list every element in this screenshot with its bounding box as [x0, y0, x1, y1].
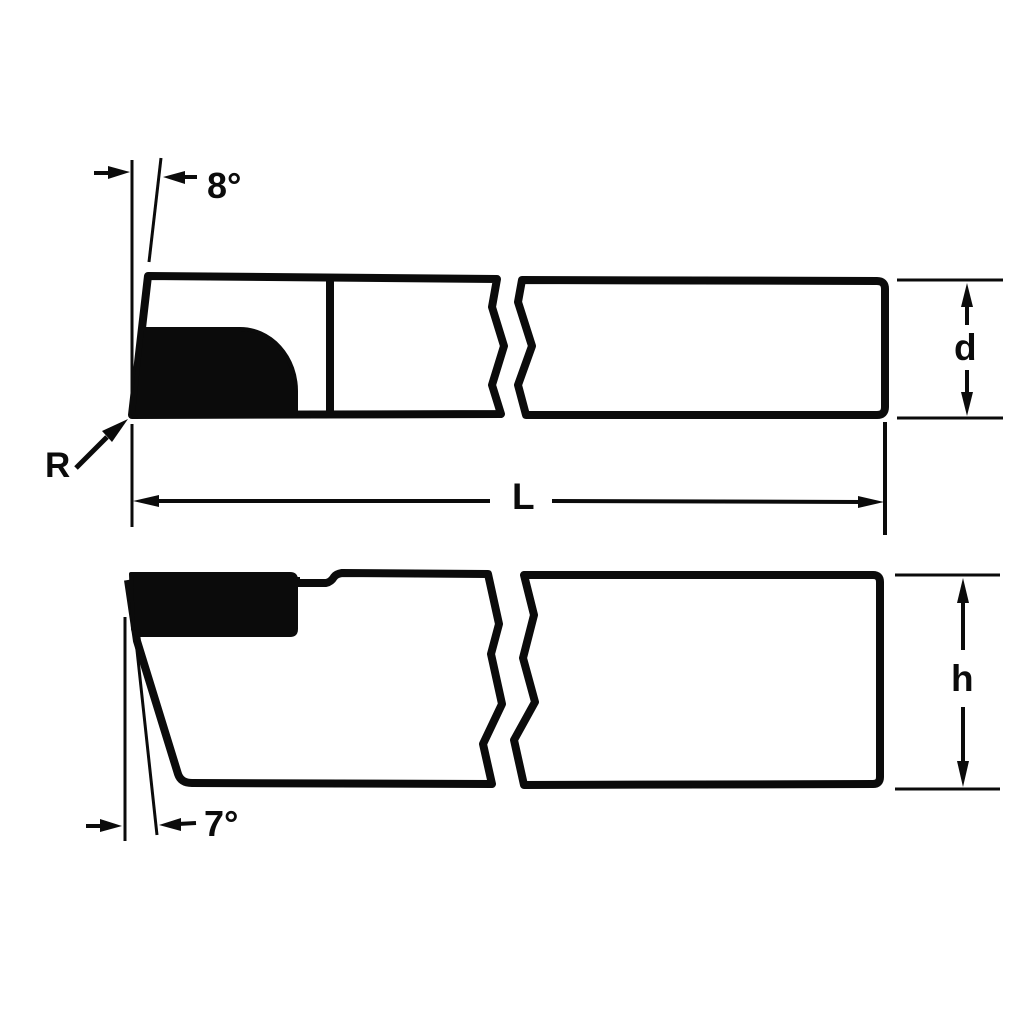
- svg-text:d: d: [954, 327, 977, 368]
- svg-text:8°: 8°: [207, 165, 241, 206]
- svg-text:7°: 7°: [204, 803, 238, 844]
- svg-text:L: L: [512, 476, 535, 517]
- svg-text:h: h: [951, 658, 974, 699]
- svg-text:R: R: [45, 446, 70, 485]
